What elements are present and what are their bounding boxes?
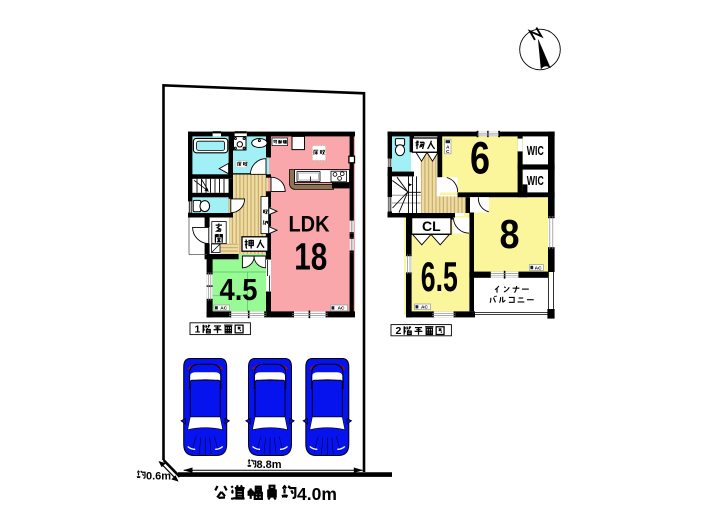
svg-text:AC: AC <box>421 305 428 311</box>
svg-text:WIC: WIC <box>527 174 544 188</box>
svg-text:CL: CL <box>422 218 441 234</box>
svg-text:LDK: LDK <box>289 212 331 237</box>
svg-text:6.5: 6.5 <box>421 253 458 300</box>
svg-text:AC: AC <box>338 306 345 312</box>
svg-text:6: 6 <box>470 133 490 184</box>
svg-text:AC: AC <box>535 265 542 271</box>
svg-text:2: 2 <box>396 325 402 337</box>
svg-text:4.5: 4.5 <box>220 273 258 307</box>
svg-text:4.0m: 4.0m <box>297 484 337 504</box>
svg-text:8.8m: 8.8m <box>257 459 282 471</box>
svg-text:8: 8 <box>500 211 520 257</box>
svg-text:AC: AC <box>220 306 227 312</box>
svg-text:18: 18 <box>294 236 327 278</box>
svg-text:WIC: WIC <box>527 144 544 158</box>
svg-text:0.6m: 0.6m <box>146 470 171 482</box>
svg-text:1: 1 <box>195 324 201 336</box>
